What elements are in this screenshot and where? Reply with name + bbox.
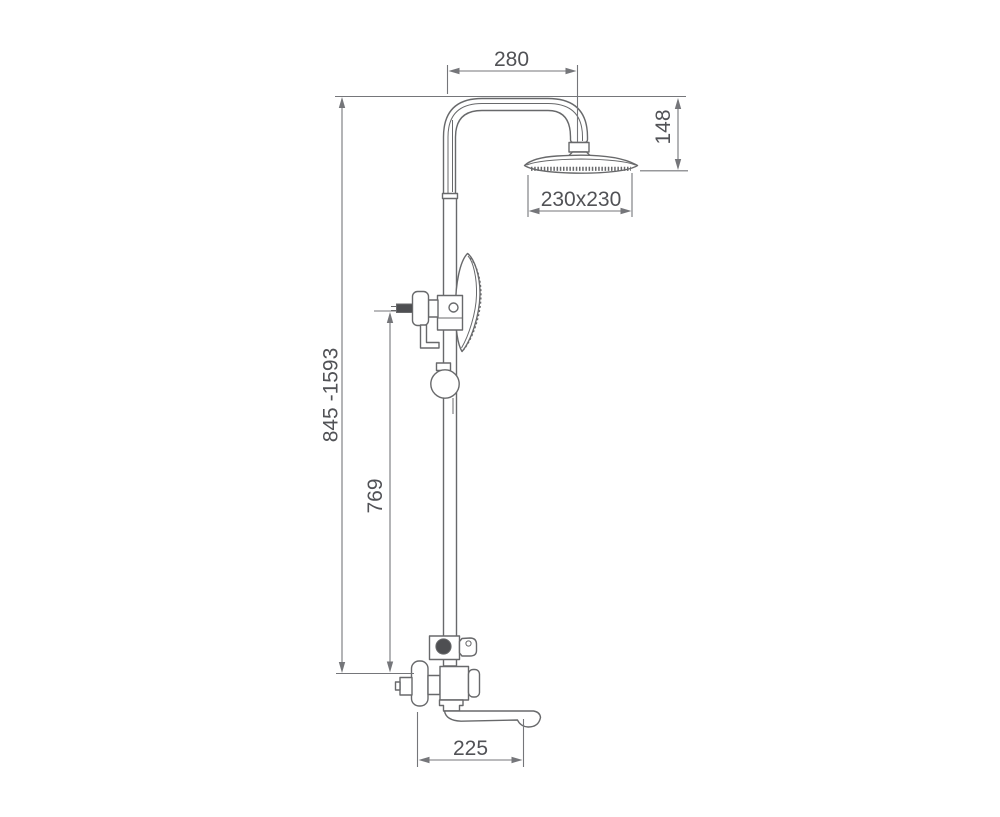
- wall-bracket-screw: [397, 304, 413, 313]
- dimension-arm-reach: 280: [448, 48, 578, 142]
- arrow-up-icon: [675, 98, 681, 109]
- valve-end-cap: [469, 670, 480, 698]
- wall-supply-stub: [400, 678, 412, 696]
- spout-nut: [440, 700, 464, 711]
- allen-key: [421, 325, 440, 348]
- dim-label-hand-shower-height: 769: [364, 478, 387, 513]
- dimension-head-size: 230x230: [528, 173, 632, 217]
- slider-knob: [413, 292, 429, 326]
- flange-connector: [428, 676, 440, 695]
- dimension-head-drop: 148: [640, 98, 688, 171]
- arrow-left-icon: [449, 68, 460, 74]
- arm-connector-nut: [569, 143, 589, 153]
- technical-drawing: 845 -1593 769 280 148: [0, 0, 1000, 817]
- dimension-total-height: 845 -1593: [320, 97, 346, 673]
- hose-ball-joint: [431, 370, 459, 398]
- dim-label-head-drop: 148: [652, 109, 675, 144]
- arrow-down-icon: [387, 662, 393, 673]
- arrow-right-icon: [512, 757, 523, 763]
- wall-flange: [412, 661, 429, 706]
- shower-arm: [444, 99, 588, 196]
- slider-clamp: [438, 296, 463, 331]
- arrow-right-icon: [621, 208, 632, 214]
- slider-knob-stem: [429, 300, 439, 317]
- mixer-valve-body: [440, 667, 469, 701]
- arrow-down-icon: [339, 662, 345, 673]
- arrow-right-icon: [566, 68, 577, 74]
- diverter-knob: [436, 639, 451, 654]
- slider-pivot: [449, 303, 458, 312]
- pipe-collar-joint: [443, 194, 458, 199]
- arrow-down-icon: [675, 159, 681, 170]
- arrow-up-icon: [339, 97, 345, 108]
- dim-label-arm-reach: 280: [494, 48, 529, 71]
- supply-nub: [396, 682, 401, 690]
- dim-label-spout-reach: 225: [453, 737, 488, 760]
- shower-arm-detail-line: [448, 104, 583, 195]
- dim-label-total-height: 845 -1593: [320, 348, 343, 443]
- screw-tip-icon: [391, 307, 397, 311]
- dim-label-head-size: 230x230: [541, 188, 622, 211]
- dimensions: 845 -1593 769 280 148: [320, 48, 689, 767]
- drawing-canvas: 845 -1593 769 280 148: [0, 0, 1000, 817]
- riser-pipe: [444, 196, 457, 666]
- arrow-up-icon: [387, 312, 393, 323]
- dimension-hand-shower-height: 769: [364, 312, 393, 673]
- arrow-left-icon: [529, 208, 540, 214]
- tub-spout: [445, 711, 541, 727]
- arrow-left-icon: [419, 757, 430, 763]
